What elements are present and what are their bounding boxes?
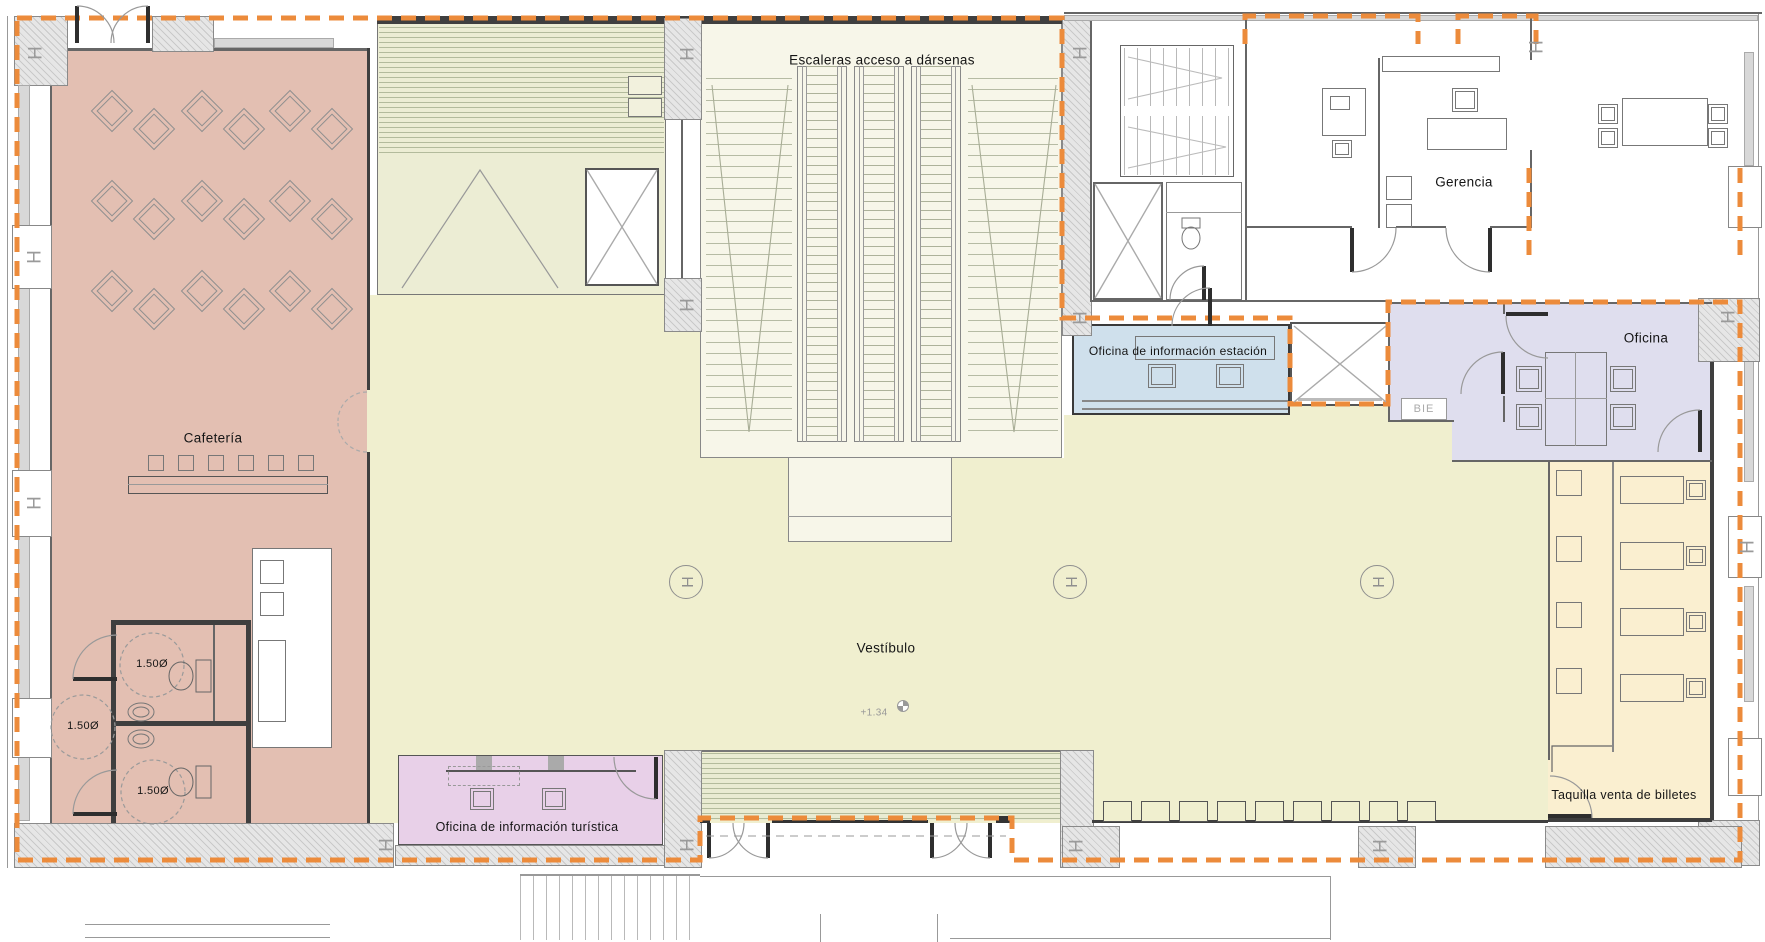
lobby-label: Vestíbulo bbox=[857, 641, 916, 656]
door-arc bbox=[73, 770, 117, 814]
level-marker-symbol bbox=[898, 701, 909, 712]
door-arc bbox=[1352, 228, 1396, 272]
door-arc bbox=[733, 823, 768, 858]
door-arc-dashed bbox=[338, 423, 367, 452]
door-arc bbox=[77, 6, 114, 43]
column-marker: H bbox=[1063, 839, 1085, 853]
turning-circle-label: 1.50Ø bbox=[137, 785, 169, 797]
door-arc bbox=[73, 635, 117, 679]
door-arc bbox=[955, 823, 990, 858]
grid-column-letter: H bbox=[1061, 576, 1079, 588]
column-marker: H bbox=[674, 838, 696, 852]
grid-column-letter: H bbox=[1368, 576, 1386, 588]
stairs-hall-label: Escaleras acceso a dársenas bbox=[789, 53, 975, 68]
column-marker: H bbox=[1067, 311, 1089, 325]
column-marker: H bbox=[1067, 46, 1089, 60]
column-marker: H bbox=[1523, 40, 1545, 54]
grid-column-marker: H bbox=[669, 565, 703, 599]
floor-plan: H H H H H H H H H H H H H H H H H Escale… bbox=[0, 0, 1765, 942]
door-arc bbox=[1658, 410, 1700, 452]
management-label: Gerencia bbox=[1435, 175, 1493, 190]
column-marker: H bbox=[21, 496, 43, 510]
grid-column-marker: H bbox=[1053, 565, 1087, 599]
column-marker: H bbox=[674, 298, 696, 312]
door-arc bbox=[1446, 228, 1490, 272]
column-marker: H bbox=[1367, 839, 1389, 853]
door-arc bbox=[614, 757, 656, 799]
column-marker: H bbox=[674, 47, 696, 61]
office-label: Oficina bbox=[1624, 331, 1668, 346]
stairwell-direction-lines bbox=[1128, 57, 1226, 168]
ticket-counter-notch bbox=[1552, 746, 1612, 772]
door-arc bbox=[709, 823, 744, 858]
column-marker: H bbox=[21, 250, 43, 264]
cafeteria-label: Cafetería bbox=[184, 431, 243, 446]
turning-circle-label: 1.50Ø bbox=[67, 720, 99, 732]
station-info-office-label: Oficina de información estación bbox=[1089, 344, 1267, 358]
column-marker: H bbox=[1734, 540, 1756, 554]
door-arc bbox=[1461, 352, 1503, 394]
column-marker: H bbox=[1715, 310, 1737, 324]
linework-overlay bbox=[0, 0, 1765, 942]
door-arc bbox=[111, 6, 148, 43]
roof-triangle bbox=[402, 170, 558, 288]
grid-column-marker: H bbox=[1360, 565, 1394, 599]
ticket-office-label: Taquilla venta de billetes bbox=[1551, 788, 1696, 802]
stair-direction-lines bbox=[712, 85, 1056, 432]
bie-label: BIE bbox=[1414, 403, 1435, 415]
boundary-dashed-topright-1 bbox=[1245, 16, 1418, 44]
toilet bbox=[169, 766, 211, 798]
toilet bbox=[1182, 218, 1200, 249]
door-arc bbox=[1170, 266, 1204, 300]
grid-column-letter: H bbox=[677, 576, 695, 588]
door-arc bbox=[1506, 316, 1548, 358]
column-marker: H bbox=[22, 46, 44, 60]
sink bbox=[128, 703, 154, 748]
level-marker-label: +1.34 bbox=[860, 708, 887, 719]
boundary-dashed-main bbox=[17, 18, 1740, 860]
column-marker: H bbox=[373, 838, 395, 852]
turning-circle-label: 1.50Ø bbox=[136, 658, 168, 670]
door-arc bbox=[932, 823, 967, 858]
door-arc-dashed bbox=[338, 392, 367, 421]
tourist-info-office-label: Oficina de información turística bbox=[436, 820, 619, 834]
